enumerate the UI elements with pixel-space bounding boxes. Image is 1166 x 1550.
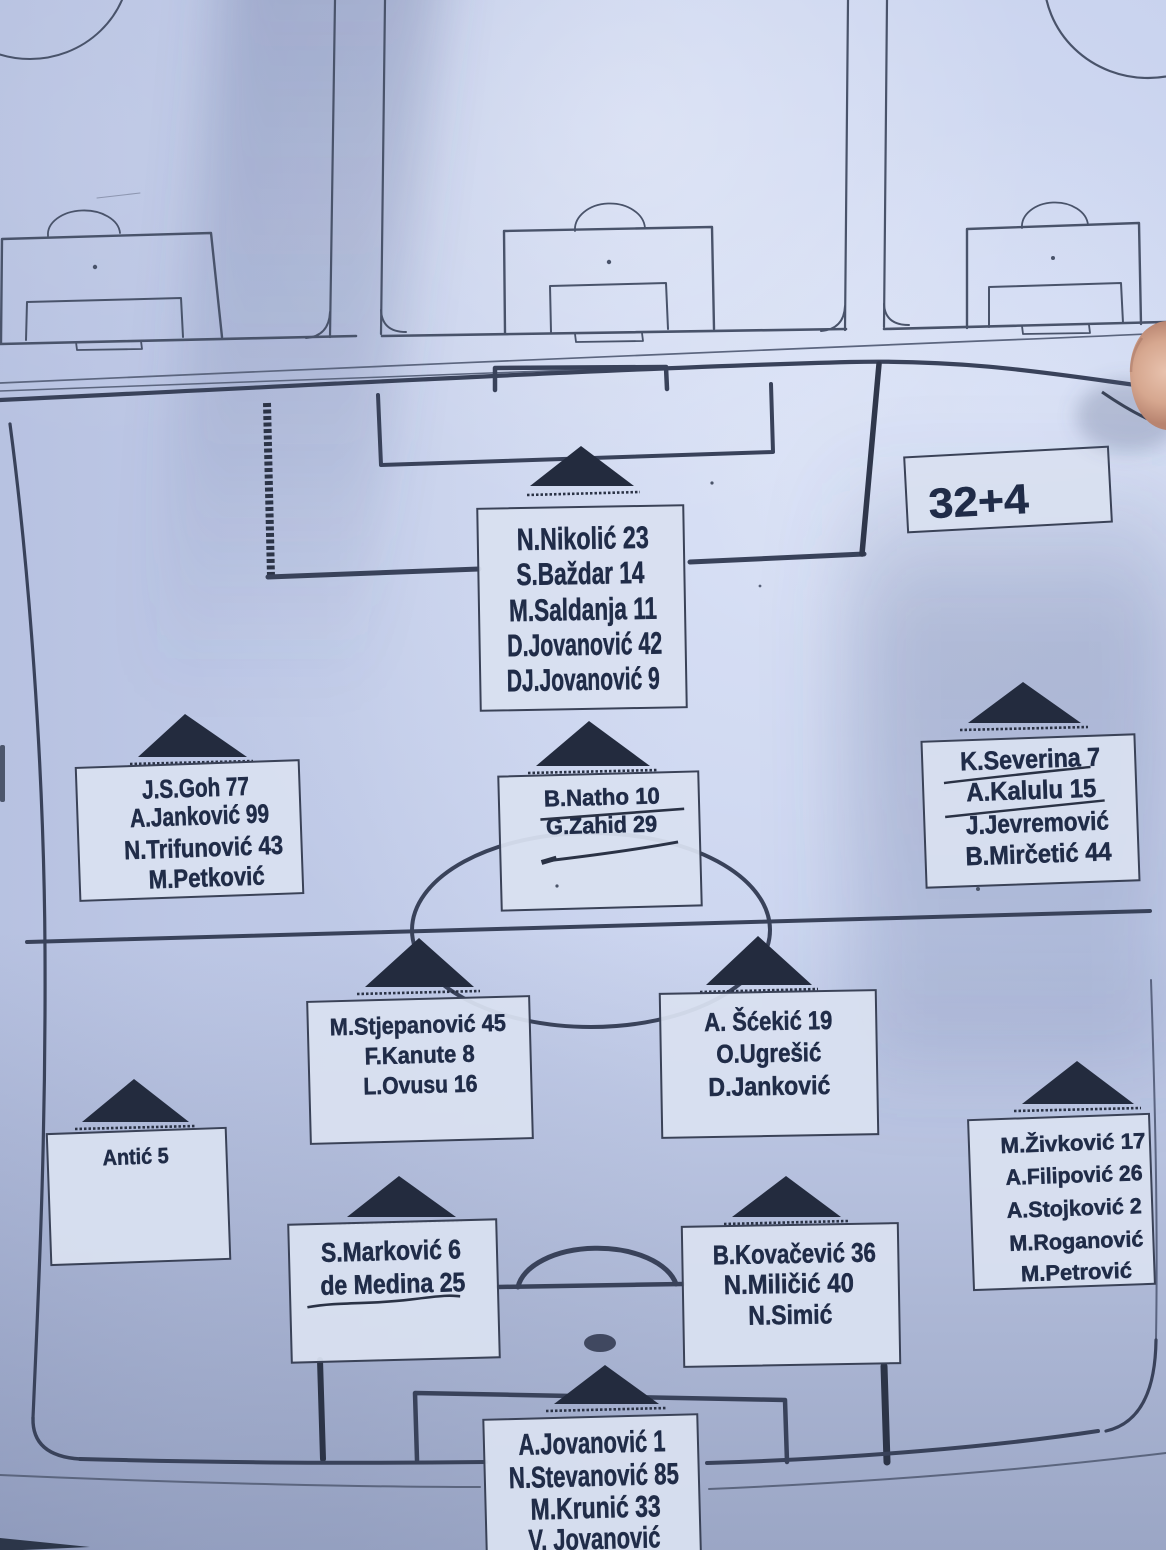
svg-text:M.Petković: M.Petković — [148, 860, 265, 894]
svg-text:N.Simić: N.Simić — [748, 1299, 833, 1330]
svg-text:A. Šćekić 19: A. Šćekić 19 — [704, 1005, 833, 1037]
svg-text:B.Kovačević 36: B.Kovačević 36 — [713, 1237, 876, 1270]
svg-text:M.Petrović: M.Petrović — [1021, 1258, 1133, 1287]
svg-text:F.Kanute 8: F.Kanute 8 — [364, 1041, 475, 1071]
svg-text:M.Saldanja 11: M.Saldanja 11 — [509, 591, 658, 629]
svg-text:Antić 5: Antić 5 — [102, 1143, 169, 1170]
svg-text:A.Filipović 26: A.Filipović 26 — [1005, 1160, 1143, 1190]
svg-text:N.Nikolić 23: N.Nikolić 23 — [516, 520, 649, 557]
svg-text:S.Baždar 14: S.Baždar 14 — [516, 555, 645, 592]
svg-text:N.Miličić 40: N.Miličić 40 — [724, 1268, 855, 1300]
svg-text:M.Živković 17: M.Živković 17 — [1000, 1128, 1146, 1158]
svg-text:B.Mirčetić 44: B.Mirčetić 44 — [965, 836, 1112, 871]
svg-text:B.Natho 10: B.Natho 10 — [544, 782, 661, 811]
svg-text:M.Roganović: M.Roganović — [1009, 1226, 1144, 1256]
svg-text:D.Janković: D.Janković — [708, 1070, 831, 1102]
svg-text:A.Stojković 2: A.Stojković 2 — [1006, 1193, 1142, 1223]
svg-text:S.Marković 6: S.Marković 6 — [321, 1234, 462, 1268]
svg-text:K.Severina 7: K.Severina 7 — [960, 742, 1101, 777]
svg-text:L.Ovusu 16: L.Ovusu 16 — [363, 1071, 478, 1101]
svg-text:D.Jovanović 42: D.Jovanović 42 — [507, 626, 663, 664]
svg-text:32+4: 32+4 — [927, 475, 1030, 527]
svg-text:J.Jevremović: J.Jevremović — [965, 805, 1109, 840]
svg-text:O.Ugrešić: O.Ugrešić — [716, 1037, 822, 1069]
svg-text:A.Jovanović 1: A.Jovanović 1 — [518, 1425, 666, 1462]
svg-text:DJ.Jovanović 9: DJ.Jovanović 9 — [506, 661, 660, 699]
svg-text:V. Jovanović: V. Jovanović — [528, 1521, 661, 1550]
svg-text:M.Stjepanović 45: M.Stjepanović 45 — [330, 1010, 507, 1042]
svg-text:A.Janković 99: A.Janković 99 — [130, 798, 270, 833]
